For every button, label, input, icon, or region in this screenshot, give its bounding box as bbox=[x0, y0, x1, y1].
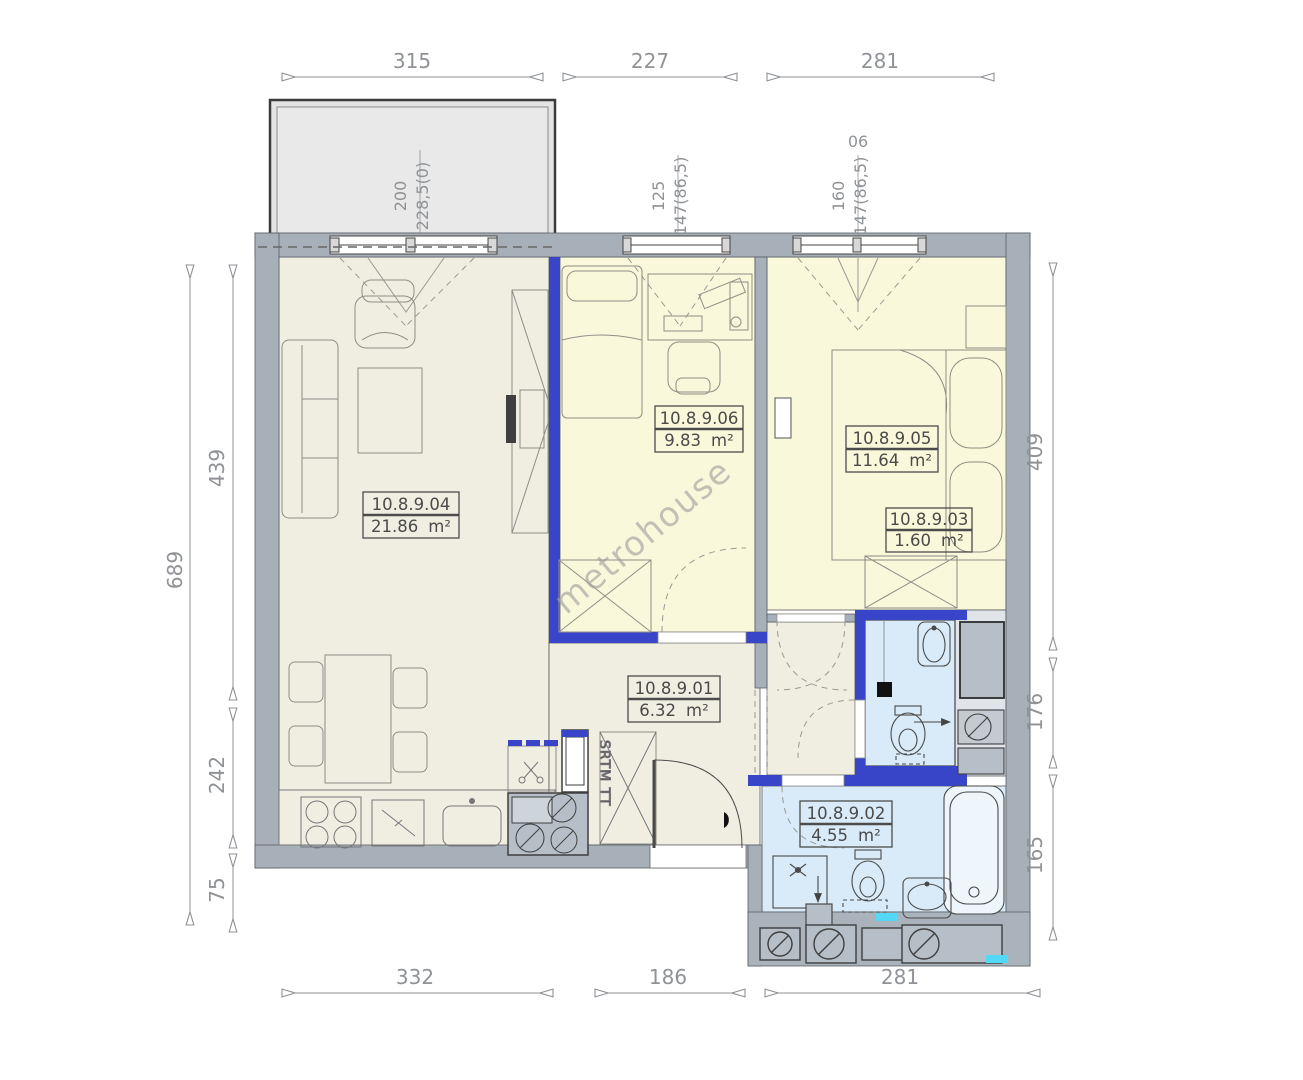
entrance-door-gap bbox=[650, 845, 746, 868]
wall-blue-under-room06-left bbox=[549, 632, 658, 643]
balcony-door-width: 200 bbox=[391, 181, 410, 212]
floor-plan-page: SRTM TT bbox=[0, 0, 1303, 1080]
dim-left-3: 75 bbox=[205, 877, 229, 902]
tall-cabinet bbox=[562, 730, 588, 792]
svg-text:9.83m²: 9.83m² bbox=[664, 431, 733, 450]
bath-door-gap bbox=[782, 775, 844, 786]
dim-right-3: 165 bbox=[1023, 836, 1047, 874]
cyan-mark bbox=[986, 955, 1008, 963]
balcony-door-height: 228,5(0) bbox=[413, 162, 432, 230]
window-small-width: 125 bbox=[649, 181, 668, 212]
living-room-label: 10.8.9.04 21.86m² bbox=[363, 492, 459, 538]
closet-label: 10.8.9.03 1.60m² bbox=[886, 508, 972, 552]
svg-text:10.8.9.01: 10.8.9.01 bbox=[635, 679, 714, 698]
vent-marker bbox=[877, 682, 892, 697]
kitchen-unit-label: SRTM TT bbox=[596, 740, 612, 807]
wall-blue-bath-top-right bbox=[844, 775, 967, 786]
wall-room06-bedroom bbox=[755, 257, 767, 632]
dim-bottom-2: 186 bbox=[649, 965, 687, 989]
kitchen-riser-block bbox=[508, 793, 588, 855]
bedroom-label: 10.8.9.05 11.64m² bbox=[846, 426, 938, 472]
svg-text:10.8.9.03: 10.8.9.03 bbox=[890, 510, 969, 529]
dim-top-3: 281 bbox=[861, 49, 899, 73]
svg-text:21.86m²: 21.86m² bbox=[371, 517, 451, 536]
dim-right-2: 176 bbox=[1023, 693, 1047, 731]
wall-corridor-door-gap bbox=[777, 614, 845, 622]
dim-bottom-1: 332 bbox=[396, 965, 434, 989]
washing-machine bbox=[958, 710, 1004, 744]
balcony-window bbox=[330, 236, 497, 254]
wc-door-gap bbox=[855, 700, 865, 758]
svg-text:10.8.9.05: 10.8.9.05 bbox=[853, 429, 932, 448]
svg-text:10.8.9.06: 10.8.9.06 bbox=[660, 409, 739, 428]
window-large-width: 160 bbox=[829, 181, 848, 212]
wall-blue-wc-bottom bbox=[855, 766, 967, 776]
wall-blue-under-room06-right bbox=[746, 632, 767, 643]
wall-blue-wc-top bbox=[855, 610, 967, 620]
svg-text:4.55m²: 4.55m² bbox=[811, 826, 880, 845]
dim-right-1: 409 bbox=[1023, 433, 1047, 471]
window-large bbox=[793, 236, 926, 254]
svg-text:11.64m²: 11.64m² bbox=[852, 451, 932, 470]
wall-left bbox=[255, 233, 279, 868]
floor-plan-drawing: SRTM TT bbox=[0, 0, 1303, 1080]
shaft-equipment bbox=[958, 622, 1004, 774]
window-large-tag: 06 bbox=[848, 132, 868, 151]
svg-text:6.32m²: 6.32m² bbox=[639, 701, 708, 720]
cyan-mark bbox=[876, 913, 898, 921]
hall-label: 10.8.9.01 6.32m² bbox=[628, 676, 720, 722]
wall-blue-bath-top-left bbox=[748, 775, 782, 786]
dim-top-2: 227 bbox=[631, 49, 669, 73]
dim-left-outer: 689 bbox=[163, 551, 187, 589]
shaft-box-lower bbox=[958, 748, 1004, 774]
window-small-height: 147(86,5) bbox=[671, 157, 690, 236]
wall-tv bbox=[775, 398, 791, 438]
room06-door-gap bbox=[658, 632, 746, 643]
dim-bottom-3: 281 bbox=[881, 965, 919, 989]
wall-hall-stub bbox=[755, 643, 767, 688]
svg-text:10.8.9.04: 10.8.9.04 bbox=[372, 495, 451, 514]
bathroom-label: 10.8.9.02 4.55m² bbox=[800, 801, 892, 847]
window-small bbox=[623, 236, 730, 254]
dim-top-1: 315 bbox=[393, 49, 431, 73]
dim-left-2: 242 bbox=[205, 756, 229, 794]
wall-blue-wc-left-upper bbox=[855, 610, 865, 700]
window-large-height: 147(86,5) bbox=[851, 157, 870, 236]
tv-screen bbox=[506, 395, 516, 443]
svg-text:1.60m²: 1.60m² bbox=[894, 531, 963, 550]
room06-label: 10.8.9.06 9.83m² bbox=[655, 406, 743, 452]
shaft-box bbox=[960, 622, 1004, 698]
svg-text:10.8.9.02: 10.8.9.02 bbox=[807, 804, 886, 823]
bathtub bbox=[944, 786, 1004, 914]
dim-left-1: 439 bbox=[205, 449, 229, 487]
